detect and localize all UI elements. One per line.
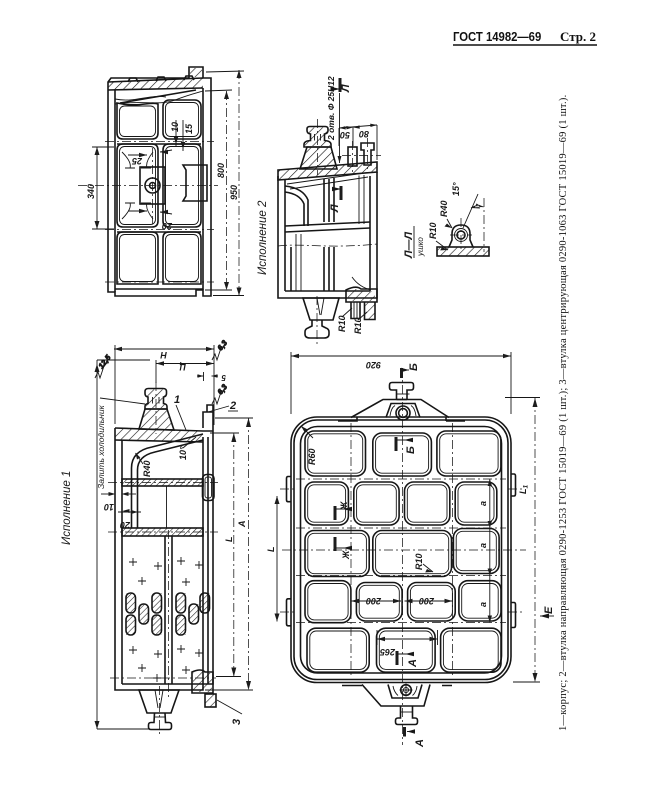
svg-text:1—корпус; 2—втулка направляюща: 1—корпус; 2—втулка направляющая 0290-125… bbox=[558, 95, 569, 731]
svg-text:15: 15 bbox=[184, 123, 194, 134]
svg-text:Е: Е bbox=[543, 606, 555, 614]
svg-text:А: А bbox=[237, 521, 247, 529]
svg-text:3: 3 bbox=[231, 719, 243, 725]
svg-text:Залить холодильник: Залить холодильник bbox=[96, 404, 106, 489]
svg-text:10: 10 bbox=[104, 502, 114, 512]
svg-text:6,3: 6,3 bbox=[215, 382, 229, 396]
svg-text:R10: R10 bbox=[428, 222, 438, 239]
svg-text:920: 920 bbox=[366, 360, 381, 370]
svg-text:R10: R10 bbox=[414, 553, 424, 570]
svg-text:ушко: ушко bbox=[416, 237, 425, 257]
svg-text:Б: Б bbox=[405, 446, 417, 454]
svg-text:50: 50 bbox=[340, 130, 350, 140]
svg-text:20: 20 bbox=[120, 520, 131, 530]
svg-text:R40: R40 bbox=[439, 200, 449, 217]
svg-text:950: 950 bbox=[229, 185, 239, 200]
svg-text:265: 265 bbox=[379, 647, 396, 657]
svg-text:20: 20 bbox=[162, 221, 173, 231]
svg-text:ГОСТ 14982—69: ГОСТ 14982—69 bbox=[453, 29, 541, 44]
svg-text:Стр. 2: Стр. 2 bbox=[560, 29, 596, 44]
svg-text:5: 5 bbox=[221, 373, 226, 382]
svg-text:А: А bbox=[414, 739, 426, 748]
svg-text:L: L bbox=[266, 547, 276, 553]
svg-text:L1: L1 bbox=[518, 485, 530, 495]
svg-text:Ц: Ц bbox=[179, 362, 186, 372]
svg-text:12,5: 12,5 bbox=[96, 353, 113, 371]
svg-text:2: 2 bbox=[229, 400, 236, 412]
svg-text:80: 80 bbox=[359, 129, 369, 139]
svg-text:а: а bbox=[478, 543, 488, 548]
svg-text:Ж: Ж bbox=[339, 501, 349, 511]
svg-text:а: а bbox=[478, 602, 488, 607]
svg-text:6,3: 6,3 bbox=[215, 338, 229, 352]
svg-text:Ж: Ж bbox=[341, 550, 351, 560]
svg-text:Н: Н bbox=[160, 350, 167, 360]
svg-text:А: А bbox=[407, 659, 419, 668]
svg-text:L: L bbox=[224, 537, 234, 543]
svg-text:10°: 10° bbox=[178, 446, 188, 460]
svg-text:10: 10 bbox=[170, 122, 180, 132]
svg-text:200: 200 bbox=[419, 596, 435, 606]
svg-text:Л—Л: Л—Л bbox=[403, 231, 415, 259]
svg-text:25: 25 bbox=[131, 156, 143, 166]
svg-text:Б: Б bbox=[408, 363, 420, 371]
svg-text:340: 340 bbox=[86, 184, 96, 199]
svg-text:Исполнение 2: Исполнение 2 bbox=[257, 200, 269, 275]
svg-text:15°: 15° bbox=[451, 182, 461, 196]
svg-text:Л: Л bbox=[329, 204, 341, 213]
svg-text:Исполнение 1: Исполнение 1 bbox=[61, 471, 73, 545]
svg-text:1: 1 bbox=[174, 394, 180, 406]
svg-text:R40: R40 bbox=[142, 460, 152, 477]
svg-text:а: а bbox=[478, 501, 488, 506]
svg-text:200: 200 bbox=[366, 596, 382, 606]
svg-text:800: 800 bbox=[216, 163, 226, 178]
svg-text:2 отв. Ф 25Н12: 2 отв. Ф 25Н12 bbox=[326, 76, 336, 141]
svg-text:Л: Л bbox=[340, 84, 352, 93]
svg-text:R60: R60 bbox=[307, 448, 317, 465]
svg-text:R10: R10 bbox=[337, 315, 347, 332]
